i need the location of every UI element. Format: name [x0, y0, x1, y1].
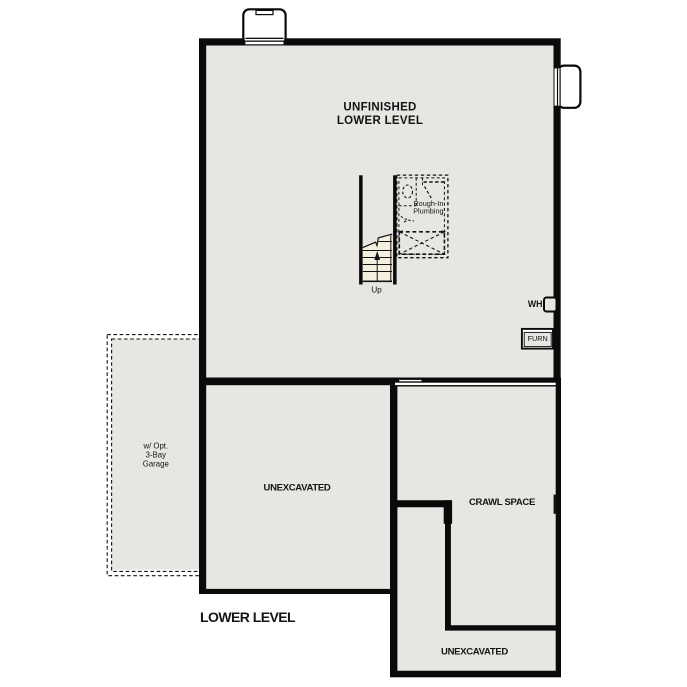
svg-text:3-Bay: 3-Bay: [146, 450, 166, 459]
svg-text:CRAWL SPACE: CRAWL SPACE: [469, 497, 535, 508]
svg-text:FURN: FURN: [528, 334, 548, 343]
svg-text:Up: Up: [371, 285, 382, 295]
svg-text:LOWER LEVEL: LOWER LEVEL: [337, 115, 423, 127]
svg-text:Garage: Garage: [143, 459, 169, 468]
svg-text:w/ Opt.: w/ Opt.: [142, 442, 168, 451]
svg-text:WH: WH: [528, 299, 543, 309]
svg-text:Plumbing: Plumbing: [413, 207, 443, 216]
svg-text:UNEXCAVATED: UNEXCAVATED: [264, 482, 331, 493]
svg-text:UNEXCAVATED: UNEXCAVATED: [441, 646, 508, 657]
svg-text:UNFINISHED: UNFINISHED: [343, 101, 416, 113]
svg-text:LOWER LEVEL: LOWER LEVEL: [200, 609, 296, 625]
